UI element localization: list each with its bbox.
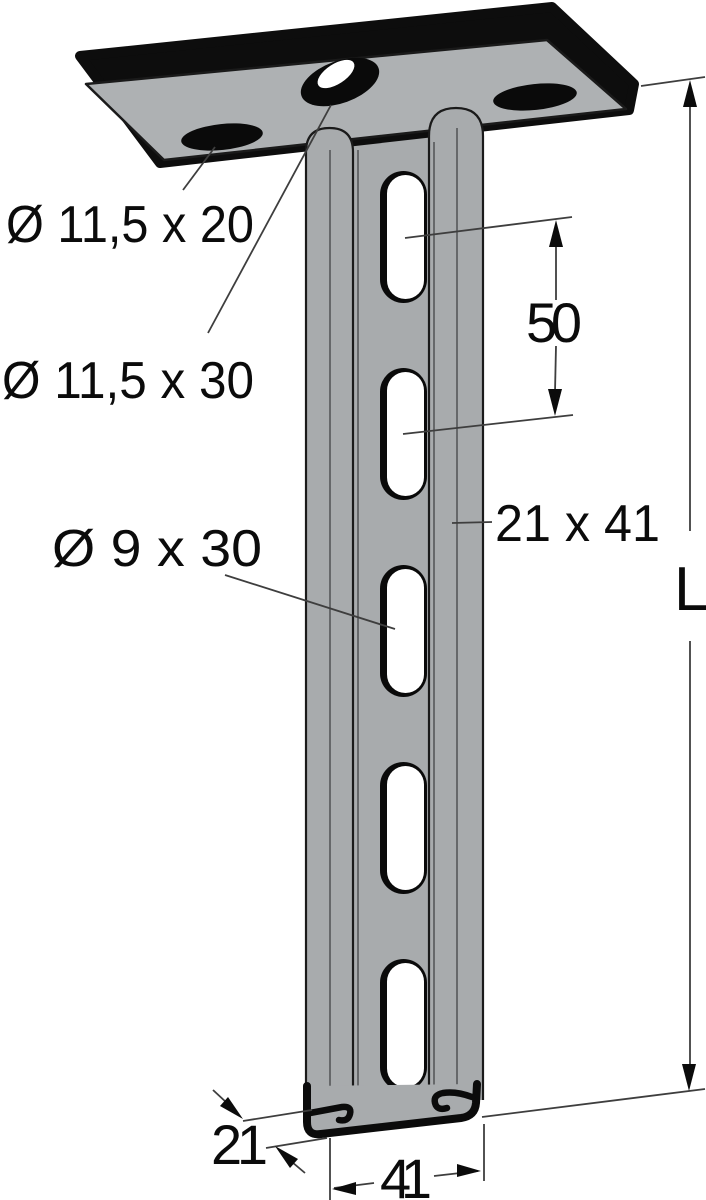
dimension-value-21: 21: [211, 1113, 268, 1176]
channel-flange-right: [429, 108, 483, 1100]
dimension-value-L: L: [674, 555, 706, 624]
label-plate-slot-small: Ø 11,5 x 20: [6, 196, 254, 254]
label-plate-slot-large: Ø 11,5 x 30: [2, 352, 254, 410]
channel-slot-opening: [387, 766, 424, 890]
channel-slot-opening: [387, 963, 424, 1087]
dimension-value-50: 50: [526, 291, 582, 354]
label-profile-size: 21 x 41: [495, 495, 660, 553]
dimension-value-41: 41: [380, 1147, 432, 1200]
label-channel-slot: Ø 9 x 30: [52, 520, 262, 578]
channel-slot-opening: [387, 569, 424, 693]
leader-line: [452, 522, 492, 523]
technical-diagram-ceiling-bracket: 50 L 41 21 Ø 11,5 x 20 Ø 11,5: [0, 0, 706, 1200]
